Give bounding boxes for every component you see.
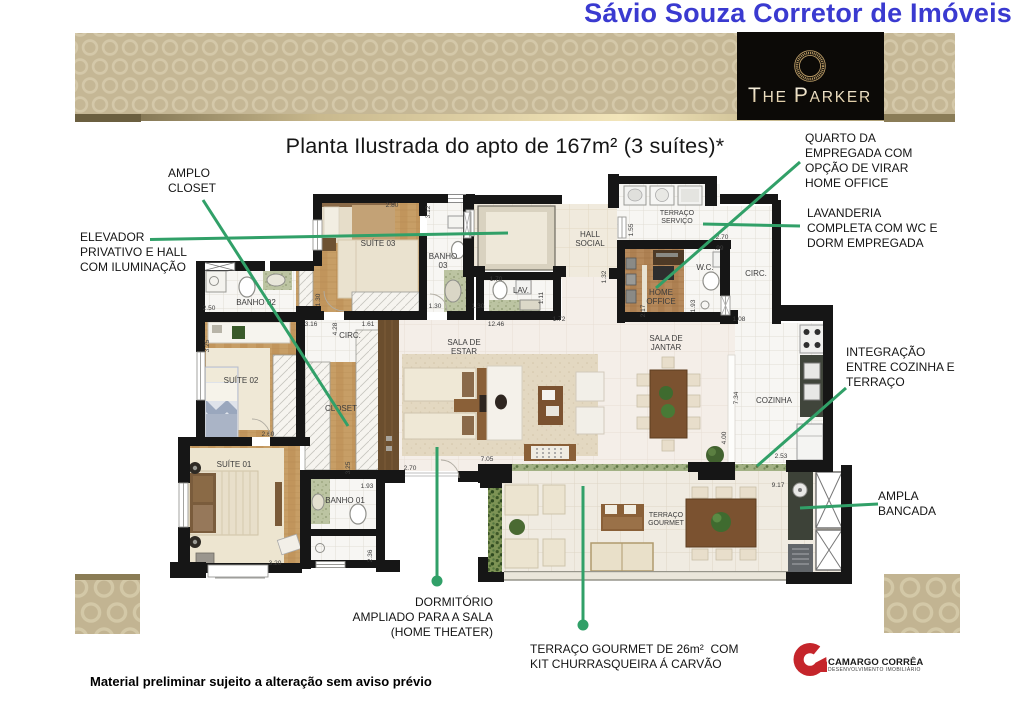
svg-text:SERVIÇO: SERVIÇO [661, 218, 693, 225]
svg-text:1.32: 1.32 [601, 270, 608, 283]
svg-text:1.93: 1.93 [690, 299, 697, 312]
svg-text:3.20: 3.20 [269, 560, 282, 567]
svg-text:2.53: 2.53 [775, 453, 788, 460]
svg-text:BANHO: BANHO [429, 252, 457, 261]
svg-text:2.50: 2.50 [203, 305, 216, 312]
svg-text:1.30: 1.30 [429, 303, 442, 310]
svg-text:ESTAR: ESTAR [451, 347, 477, 356]
svg-text:3.16: 3.16 [305, 321, 318, 328]
svg-text:GOURMET: GOURMET [648, 520, 685, 527]
svg-text:1.30: 1.30 [315, 293, 322, 306]
svg-text:03: 03 [439, 261, 448, 270]
svg-text:4.28: 4.28 [332, 322, 339, 335]
svg-text:1.93: 1.93 [361, 483, 374, 490]
svg-text:CLOSET: CLOSET [325, 404, 357, 413]
svg-text:HALL: HALL [580, 230, 601, 239]
svg-text:LAV.: LAV. [513, 286, 529, 295]
svg-text:CIRC.: CIRC. [339, 331, 361, 340]
svg-text:7.34: 7.34 [733, 391, 740, 404]
svg-text:2.70: 2.70 [404, 465, 417, 472]
svg-text:1.30: 1.30 [472, 303, 485, 310]
svg-text:TERRAÇO: TERRAÇO [649, 512, 684, 519]
svg-text:1.72: 1.72 [553, 316, 566, 323]
svg-text:3.12: 3.12 [425, 205, 432, 218]
svg-text:HOME: HOME [649, 288, 673, 297]
svg-text:SUÍTE 02: SUÍTE 02 [224, 376, 259, 385]
svg-text:4.00: 4.00 [721, 431, 728, 444]
svg-text:SALA DE: SALA DE [649, 334, 682, 343]
svg-text:3.25: 3.25 [204, 339, 211, 352]
svg-text:JANTAR: JANTAR [651, 343, 682, 352]
svg-text:CIRC.: CIRC. [745, 269, 767, 278]
svg-text:12.46: 12.46 [488, 321, 505, 328]
svg-text:1.11: 1.11 [538, 292, 545, 305]
svg-text:SALA DE: SALA DE [447, 338, 480, 347]
svg-text:2.80: 2.80 [386, 202, 399, 209]
svg-text:COZINHA: COZINHA [756, 396, 793, 405]
svg-text:2.17: 2.17 [640, 304, 647, 317]
svg-text:1.61: 1.61 [362, 321, 375, 328]
svg-text:1.55: 1.55 [628, 223, 635, 236]
svg-text:SOCIAL: SOCIAL [575, 239, 605, 248]
svg-text:1.70: 1.70 [490, 276, 503, 283]
svg-text:W.C.: W.C. [696, 263, 713, 272]
svg-text:SUÍTE 03: SUÍTE 03 [361, 239, 396, 248]
svg-text:1.08: 1.08 [733, 316, 746, 323]
svg-text:2.36: 2.36 [367, 549, 374, 562]
svg-text:3.25: 3.25 [345, 461, 352, 474]
svg-text:BANHO 01: BANHO 01 [325, 496, 365, 505]
svg-text:SUÍTE 01: SUÍTE 01 [217, 460, 252, 469]
svg-text:2.60: 2.60 [262, 431, 275, 438]
svg-text:.99: .99 [714, 245, 723, 252]
svg-text:TERRAÇO: TERRAÇO [660, 210, 695, 217]
svg-text:9.17: 9.17 [772, 482, 785, 489]
svg-text:OFFICE: OFFICE [646, 297, 675, 306]
svg-text:7.05: 7.05 [481, 456, 494, 463]
